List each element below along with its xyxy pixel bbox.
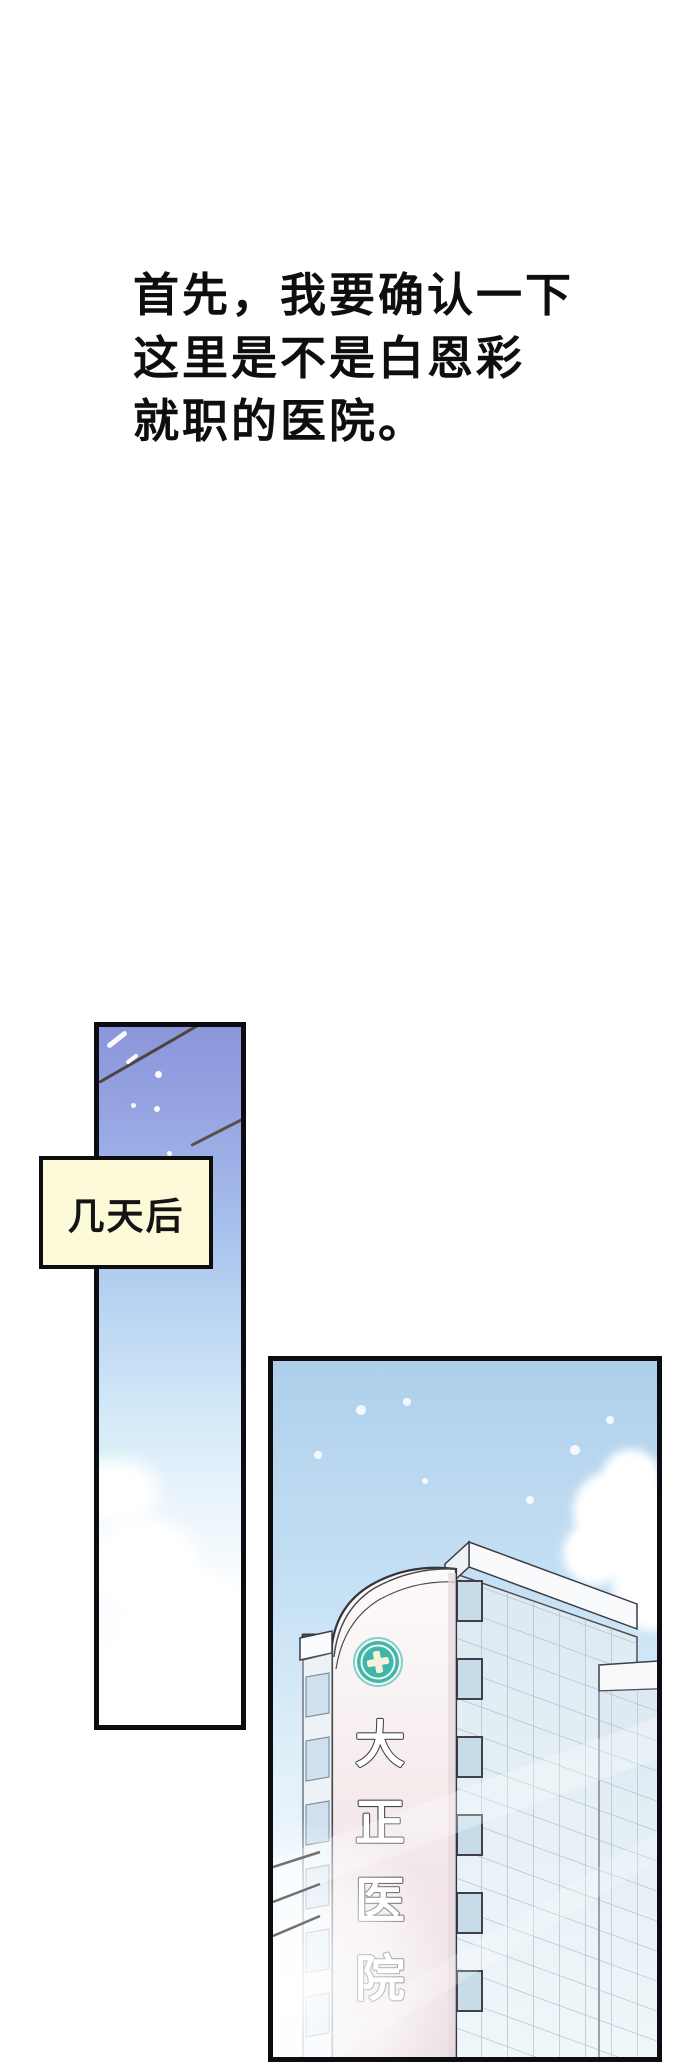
caption-label: 几天后	[68, 1186, 185, 1240]
cloud	[94, 1627, 246, 1730]
sparkle	[106, 1030, 128, 1049]
narration-line: 首先，我要确认一下	[133, 264, 574, 327]
sign-char: 大	[355, 1717, 405, 1773]
sparkle	[131, 1103, 136, 1108]
power-line	[190, 1116, 246, 1146]
sparkle	[154, 1106, 160, 1112]
narration-text-block: 首先，我要确认一下 这里是不是白恩彩 就职的医院。	[133, 264, 574, 453]
caption-box: 几天后	[39, 1156, 213, 1269]
sparkle	[155, 1071, 162, 1078]
hospital-logo	[354, 1638, 402, 1686]
sky-panel	[94, 1022, 246, 1730]
hospital-panel: 大 正 医 院	[268, 1356, 662, 2062]
power-line	[98, 1022, 202, 1084]
hospital-scene: 大 正 医 院	[273, 1361, 657, 2061]
comic-page: { "narration": { "lines": [ "首先，我要确认一下",…	[0, 0, 690, 2000]
narration-line: 就职的医院。	[133, 390, 574, 453]
narration-line: 这里是不是白恩彩	[133, 327, 574, 390]
